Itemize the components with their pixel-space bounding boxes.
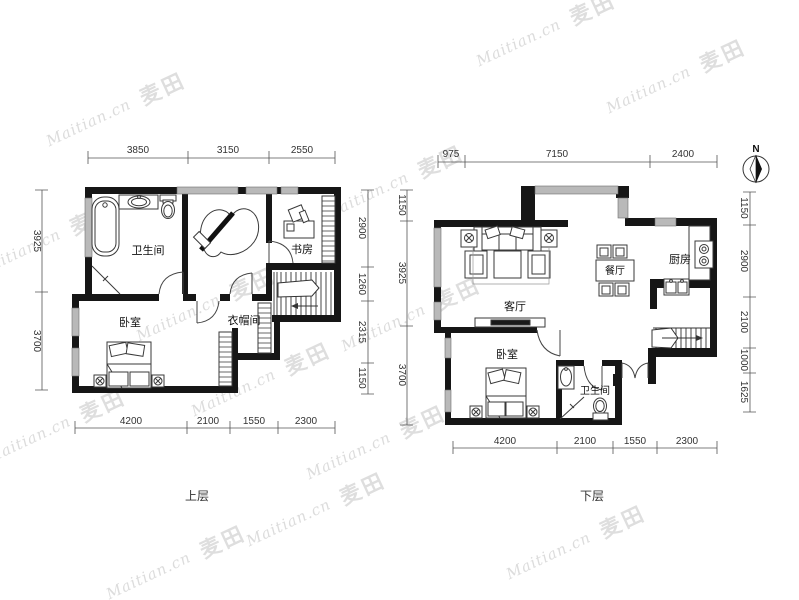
window — [655, 218, 676, 226]
door-bedroom — [197, 301, 219, 323]
nightstand — [470, 406, 482, 418]
door-cloakroom — [230, 273, 252, 294]
dimension-value: 1150 — [356, 367, 367, 389]
lower-dim-left — [400, 190, 413, 425]
bathroom-sink — [558, 366, 574, 389]
floorplan-page: Maitian.cn麦田 Maitian.cn麦田 Maitian.cn麦田 M… — [0, 0, 799, 600]
toilet — [160, 195, 176, 219]
window — [445, 390, 451, 412]
dining-chair — [615, 283, 629, 296]
wall — [437, 220, 568, 227]
room-label-living: 客厅 — [504, 299, 526, 313]
wall — [556, 360, 584, 366]
tv-console — [475, 318, 545, 327]
grand-piano — [194, 209, 259, 257]
armchair — [465, 251, 487, 278]
room-label-bathroom: 卫生间 — [580, 384, 610, 397]
room-label-dining: 餐厅 — [605, 264, 625, 277]
window — [535, 186, 618, 194]
dimension-value: 3850 — [127, 145, 150, 156]
dimension-value: 1550 — [243, 416, 266, 427]
room-label-bedroom: 卧室 — [496, 347, 518, 361]
kitchen-sink — [664, 279, 689, 295]
stair-arrow-head — [696, 335, 703, 341]
window — [246, 187, 277, 194]
floorplan-canvas: 卫生间 书房 卧室 衣帽间 3850 3150 2550 3925 3700 2… — [0, 0, 799, 600]
dimension-value: 2300 — [676, 436, 699, 447]
dimension-value: 3700 — [396, 364, 407, 387]
dimension-value: 7150 — [546, 149, 569, 160]
dimension-value: 3925 — [396, 262, 407, 285]
upper-floor-caption: 上层 — [185, 489, 209, 503]
room-label-bedroom: 卧室 — [119, 315, 141, 329]
coffee-table — [494, 251, 521, 278]
door-bedroom — [537, 330, 560, 356]
door-bathroom — [159, 272, 183, 294]
dimension-line — [400, 190, 413, 425]
side-table — [461, 230, 477, 247]
wall — [232, 353, 280, 360]
study-desk — [284, 221, 314, 238]
dining-chair — [599, 283, 613, 296]
wall — [266, 187, 272, 243]
wall — [272, 315, 341, 322]
desk-chair — [288, 205, 309, 223]
window — [445, 338, 451, 358]
dimension-value: 3150 — [217, 145, 240, 156]
room-label-study: 书房 — [291, 243, 313, 256]
dimension-value: 1625 — [738, 381, 749, 404]
sofa — [474, 226, 541, 251]
lower-floor-plan: 客厅 餐厅 厨房 卧室 卫生间 975 7150 2400 1150 3925 … — [396, 149, 756, 503]
room-label-bathroom: 卫生间 — [132, 243, 165, 257]
dimension-value: 2315 — [356, 321, 367, 344]
dimension-value: 3925 — [31, 230, 42, 253]
nightstand — [152, 375, 164, 387]
dimension-value: 1150 — [396, 194, 407, 216]
dining-chair — [613, 245, 627, 258]
double-bed — [107, 342, 151, 388]
armchair — [528, 251, 550, 278]
dimension-value: 1550 — [624, 436, 647, 447]
wall — [615, 360, 622, 425]
dimension-value: 2100 — [738, 311, 749, 334]
dimension-value: 2300 — [295, 416, 318, 427]
dimension-value: 2900 — [738, 250, 749, 273]
stove — [695, 241, 713, 268]
corner-shower — [92, 266, 120, 294]
window — [72, 308, 79, 336]
compass-label: N — [752, 144, 759, 155]
nightstand — [94, 375, 106, 387]
lower-dim-right — [743, 192, 756, 412]
room-label-cloakroom: 衣帽间 — [228, 313, 261, 327]
stair-arrow-head — [291, 303, 298, 309]
upper-floor-plan: 卫生间 书房 卧室 衣帽间 3850 3150 2550 3925 3700 2… — [31, 145, 374, 503]
double-bed — [486, 368, 526, 418]
window — [85, 198, 92, 257]
window — [618, 198, 628, 218]
corner-shower — [560, 397, 584, 419]
dimension-value: 975 — [443, 149, 460, 160]
window — [177, 187, 238, 194]
dimension-line — [35, 190, 48, 390]
wall — [220, 294, 230, 301]
compass: N — [743, 144, 769, 183]
wall — [183, 294, 196, 301]
dimension-value: 1150 — [738, 197, 749, 219]
wall — [252, 294, 268, 301]
wardrobe — [219, 332, 232, 386]
wall — [650, 279, 657, 309]
dimension-value: 3700 — [31, 330, 42, 353]
wall — [72, 294, 159, 301]
dimension-value: 2550 — [291, 145, 314, 156]
dimension-value: 1000 — [738, 349, 749, 372]
window — [72, 348, 79, 376]
dimension-value: 1260 — [356, 273, 367, 296]
window — [434, 228, 441, 287]
upper-dim-left — [35, 190, 48, 390]
wall — [648, 348, 717, 357]
nightstand — [527, 406, 539, 418]
window — [281, 187, 298, 194]
dimension-line — [743, 192, 756, 412]
dimension-value: 4200 — [120, 416, 143, 427]
entry-double-door — [622, 363, 648, 378]
dining-chair — [597, 245, 611, 258]
dimension-value: 2100 — [197, 416, 220, 427]
lower-doors — [537, 330, 648, 390]
wall — [266, 263, 337, 270]
upper-stairs — [274, 272, 331, 315]
dimension-value: 4200 — [494, 436, 517, 447]
vanity-sink — [119, 195, 158, 209]
stair-break — [278, 280, 319, 297]
side-table — [541, 230, 557, 247]
lower-floor-caption: 下层 — [580, 489, 604, 503]
dimension-value: 2100 — [574, 436, 597, 447]
room-label-kitchen: 厨房 — [669, 253, 691, 266]
toilet — [593, 398, 608, 420]
wall — [613, 374, 622, 386]
bookshelf — [322, 196, 335, 263]
door-study — [269, 241, 293, 263]
wall — [232, 328, 238, 393]
dimension-value: 2900 — [356, 217, 367, 240]
bathtub — [92, 197, 119, 256]
wardrobe — [258, 303, 271, 353]
lower-stairs — [652, 328, 710, 348]
dimension-value: 2400 — [672, 149, 695, 160]
window — [434, 302, 441, 320]
